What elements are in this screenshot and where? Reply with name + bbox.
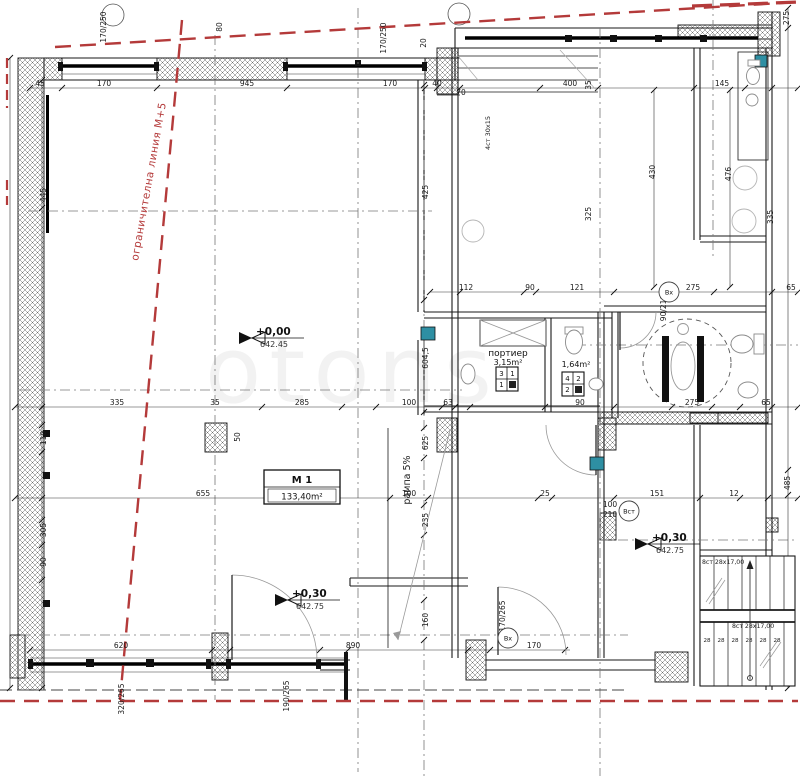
dimension-label: 305 [39, 523, 48, 538]
dimension-label: 170/250 [379, 22, 388, 53]
dimension-label: 90 [525, 283, 535, 292]
dimension-label: 28 [731, 638, 739, 644]
dimension-label: 90 [39, 557, 48, 567]
dimension-label: 28 [759, 638, 767, 644]
sink [461, 364, 475, 384]
dimension-label: 151 [650, 489, 665, 498]
level-value: +0,00 [256, 326, 291, 338]
dimension-label: 430 [648, 165, 657, 180]
toilet [566, 330, 583, 354]
door-leaf-post [344, 652, 348, 702]
dimension-label: 12 [729, 489, 739, 498]
wheelchair-icon [643, 319, 731, 407]
toilet [731, 335, 753, 353]
grid-cell: 3 [499, 370, 503, 378]
dimension-label: 945 [240, 79, 255, 88]
dimension-label: 28 [773, 638, 781, 644]
dimension-label: 170 [97, 79, 112, 88]
dimension-label: 112 [459, 283, 474, 292]
ramp: рампа 5% [388, 428, 450, 648]
dimension-label: 620 [114, 641, 129, 650]
dimension-label: 50 [233, 432, 242, 442]
dimension-label: 28 [745, 638, 753, 644]
toilet-tank [754, 334, 764, 354]
dimension-label: 275 [782, 11, 791, 26]
door-tag-label: Вст [623, 508, 635, 516]
door-marker [421, 327, 435, 340]
watermark-text: otons [205, 317, 500, 424]
grid-cell: 1 [510, 370, 514, 378]
sink [589, 378, 603, 390]
dimension-label: 485 [783, 476, 792, 491]
elevation-marker: +0,30642.75 [275, 588, 340, 611]
dimension-label: 145 [715, 79, 730, 88]
dimension-label: 275 [686, 283, 701, 292]
toilet [747, 68, 760, 85]
dimension-label: 20 [419, 38, 428, 48]
room-m1-area: 133,40m² [281, 493, 322, 503]
sink [738, 382, 758, 398]
grid-cell: 1 [499, 381, 503, 389]
dimension-label: 70 [456, 88, 466, 97]
dimension-label: 170/265 [498, 600, 507, 631]
door-tag-label: Вх [504, 635, 512, 643]
stairs: 8ст 28х17,00 8ст 28х17,00 [700, 556, 795, 686]
dimension-label: 335 [766, 210, 775, 225]
toilet-tank [748, 60, 760, 66]
level-elevation: 642.75 [296, 602, 324, 611]
door-tag: Вх [659, 282, 679, 302]
dimension-label: 35 [584, 80, 593, 90]
dimension-label: 325 [584, 207, 593, 222]
dimension-label: 655 [196, 489, 211, 498]
sink [746, 94, 758, 106]
room-wc-area: 1,64m² [562, 360, 591, 369]
dimension-label: 335 [110, 398, 125, 407]
room-porter-area: 3,15m² [494, 358, 523, 367]
level-elevation: 642.45 [260, 340, 288, 349]
level-elevation: 642.75 [656, 546, 684, 555]
dimension-label: 425 [421, 185, 430, 200]
dimension-label: 80 [215, 22, 224, 32]
dimension-label: 625 [421, 436, 430, 451]
exterior-stair-label: 4ст 30х15 [484, 116, 492, 150]
dimension-label: 890 [346, 641, 361, 650]
level-value: +0,30 [292, 588, 327, 600]
dimension-label: 235 [421, 513, 430, 528]
door-tag: Вх [498, 628, 518, 648]
grid-cell: 2 [565, 386, 569, 394]
dimension-label: 40 [432, 79, 442, 88]
dimension-label: 63 [443, 398, 453, 407]
grid-cell: 4 [565, 375, 570, 383]
dimension-label: 190/265 [282, 680, 291, 711]
dimension-label: 170 [527, 641, 542, 650]
dimension-label: 604,5 [421, 347, 430, 369]
dimension-label: 121 [570, 283, 585, 292]
dimension-label: 476 [724, 167, 733, 182]
dimension-label: 100 [402, 489, 417, 498]
dimension-label: 170/250 [99, 11, 108, 42]
dimension-label: 28 [717, 638, 725, 644]
dimension-label: 285 [295, 398, 310, 407]
door-tag-label: Вх [665, 289, 673, 297]
dimension-label: 445 [39, 188, 48, 203]
dimension-label: 45 [35, 79, 45, 88]
dimension-label: 275 [685, 398, 700, 407]
door-tag: Вст [619, 501, 639, 521]
level-value: +0,30 [652, 532, 687, 544]
dimension-label: 160 [421, 613, 430, 628]
grid-bubbles [102, 3, 470, 26]
dimension-label: 65 [786, 283, 796, 292]
floor-plan-canvas: otons [0, 0, 800, 776]
stair-flight-upper-label: 8ст 28х17,00 [702, 559, 744, 566]
exterior-stair: 4ст 30х15 [458, 50, 598, 150]
schedule-grid: 311 [496, 367, 518, 391]
schedule-grid: 422 [562, 372, 584, 396]
dimension-label: 320/265 [117, 683, 126, 714]
dimension-label: 210 [603, 510, 618, 519]
stair-flight-lower-label: 8ст 28х17,00 [732, 623, 774, 630]
schedule-grids: 311422 [496, 367, 584, 396]
dimension-label: 25 [540, 489, 550, 498]
door-marker [590, 457, 604, 470]
dimension-label: 65 [761, 398, 771, 407]
grid-cell: 2 [576, 375, 580, 383]
dimension-label: 100 [603, 500, 618, 509]
dimension-label: 400 [563, 79, 578, 88]
dimension-label: 90 [575, 398, 585, 407]
dimension-label: 28 [703, 638, 711, 644]
dimension-label: 110 [39, 431, 48, 446]
dimension-label: 100 [402, 398, 417, 407]
dimension-label: 35 [210, 398, 220, 407]
floor-plan-svg: otons [0, 0, 800, 776]
room-m1-name: M 1 [292, 475, 312, 486]
elevation-marker: +0,30642.75 [635, 532, 700, 555]
dimension-label: 170 [383, 79, 398, 88]
